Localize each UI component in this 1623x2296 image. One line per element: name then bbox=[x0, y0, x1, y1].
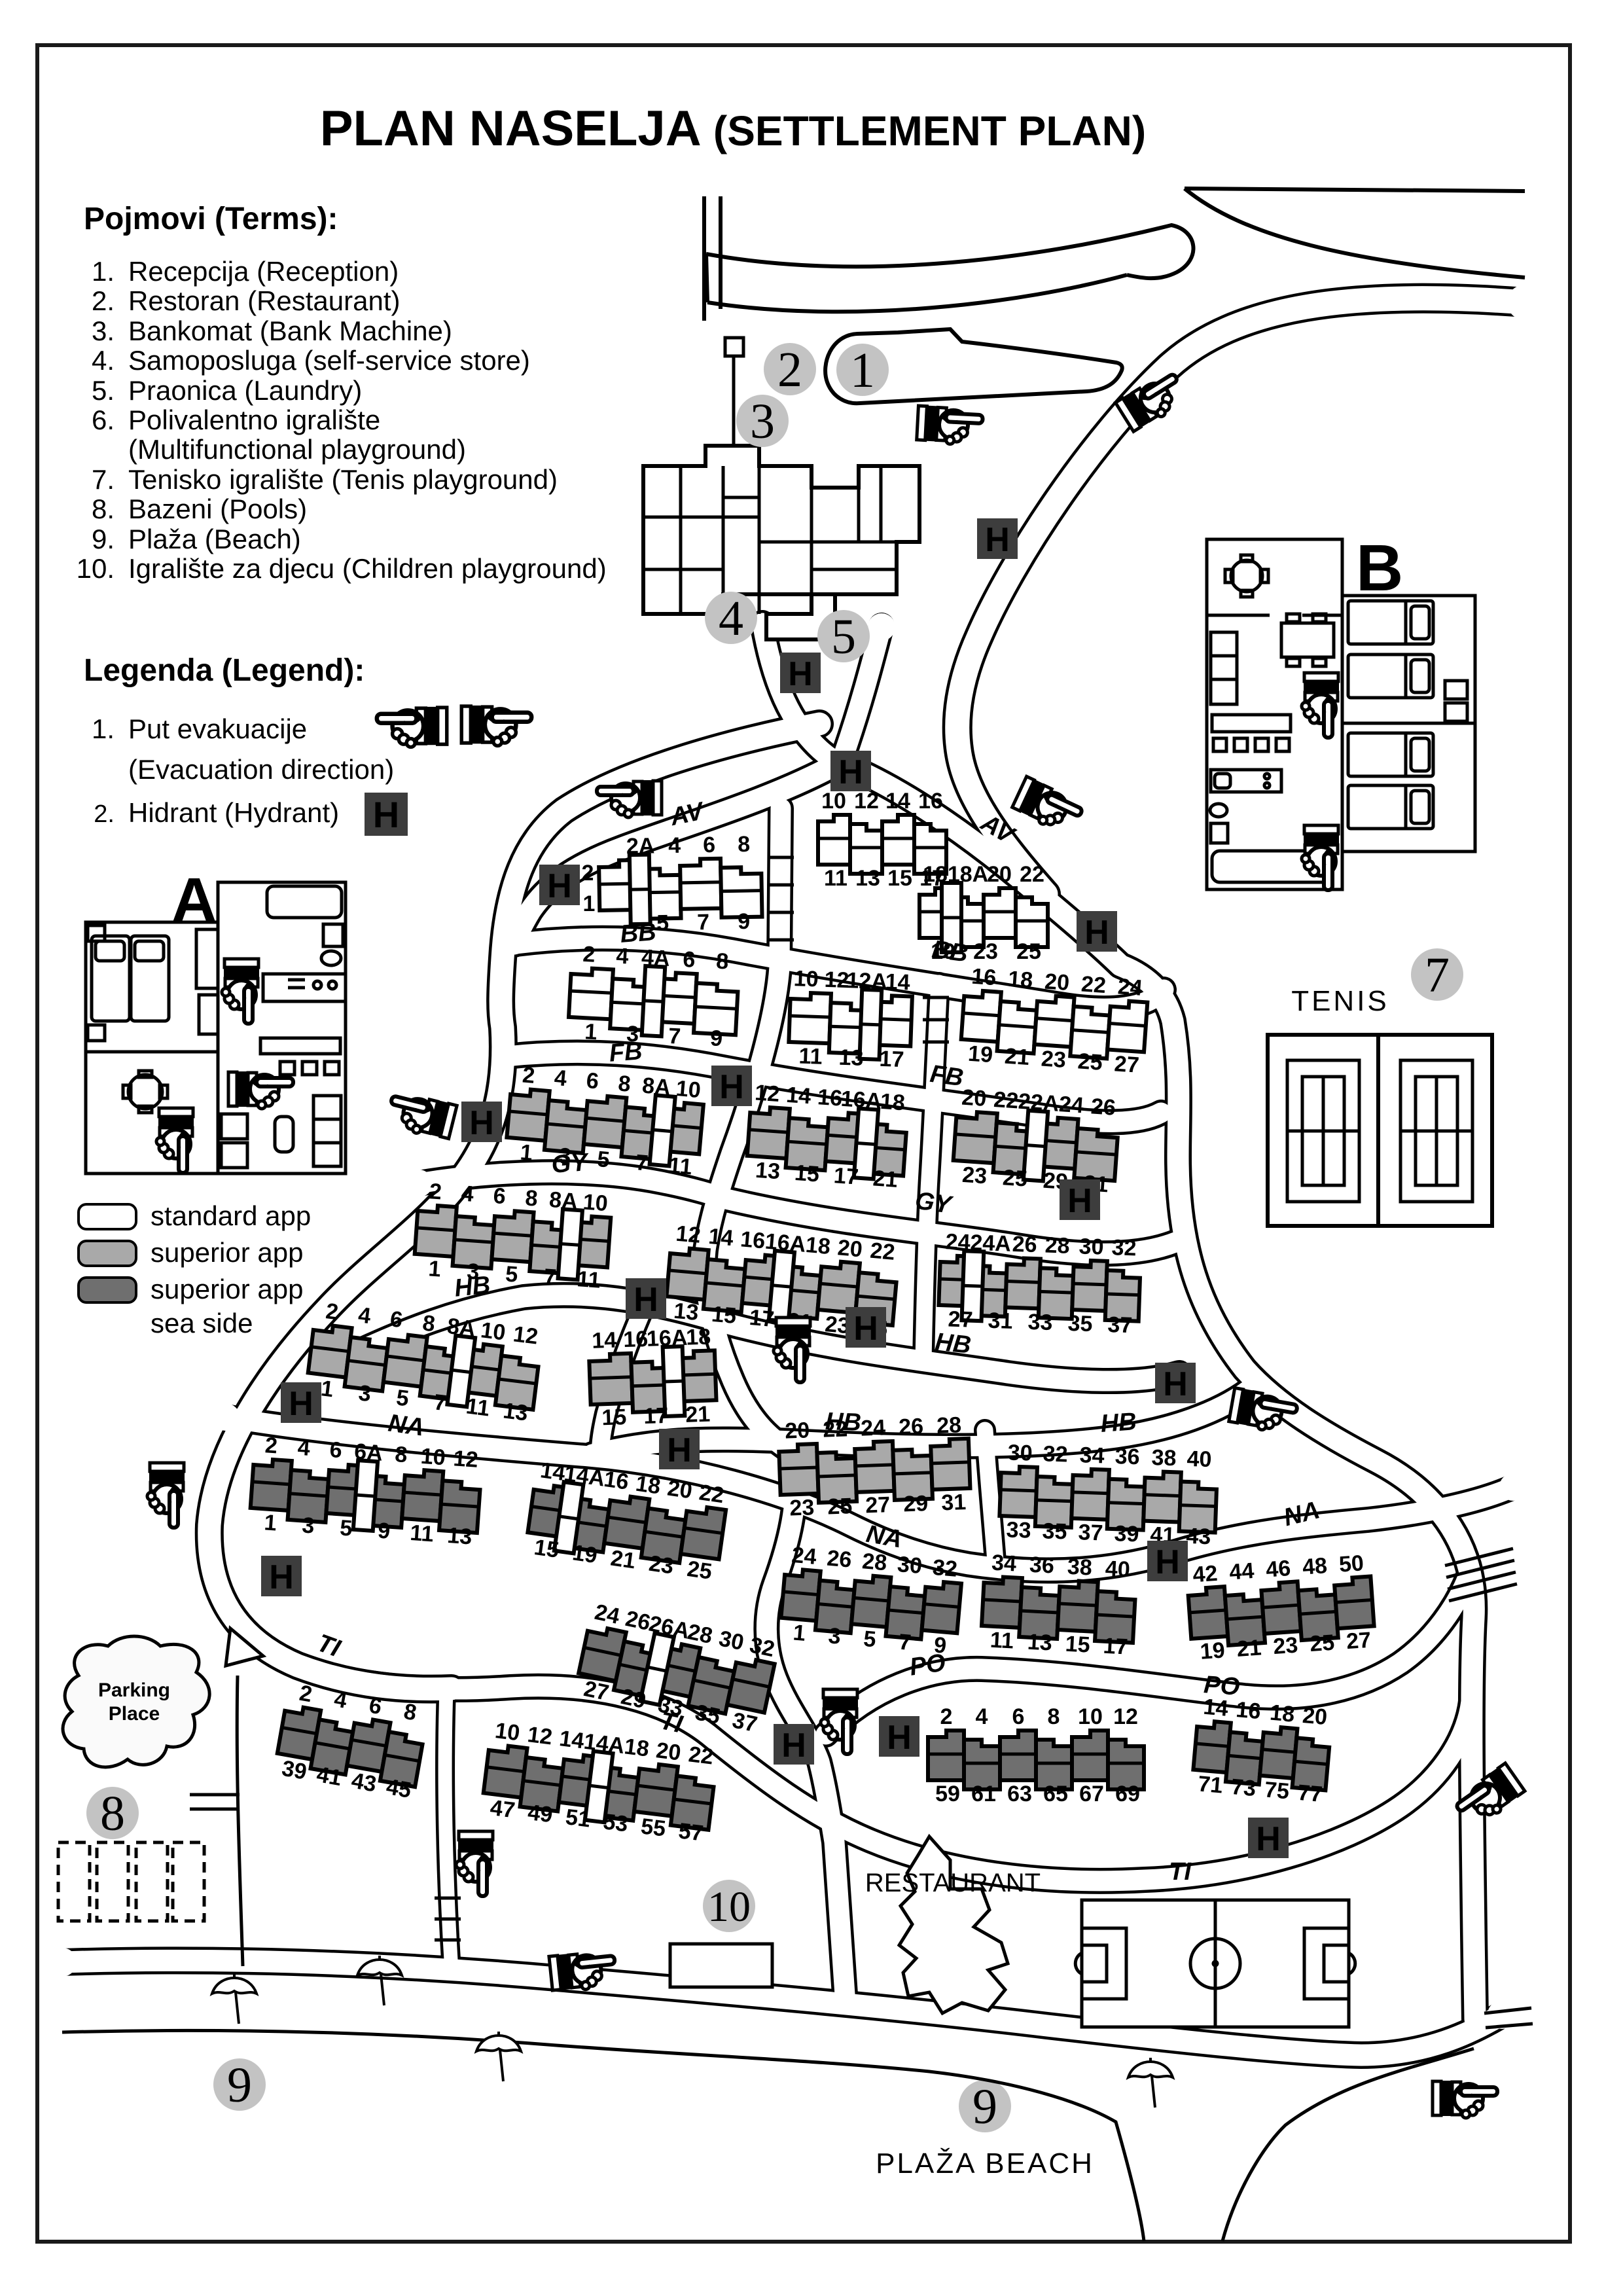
svg-text:Igralište za djecu (Children p: Igralište za djecu (Children playground) bbox=[128, 553, 607, 584]
svg-text:16A: 16A bbox=[764, 1229, 806, 1257]
svg-text:18: 18 bbox=[1007, 967, 1033, 994]
svg-text:12: 12 bbox=[675, 1221, 702, 1248]
svg-text:sea side: sea side bbox=[151, 1308, 253, 1338]
svg-text:32: 32 bbox=[931, 1555, 958, 1582]
svg-text:GY: GY bbox=[914, 1187, 955, 1220]
svg-text:16: 16 bbox=[602, 1467, 630, 1495]
svg-text:Restoran (Restaurant): Restoran (Restaurant) bbox=[128, 285, 401, 316]
svg-text:41: 41 bbox=[315, 1762, 344, 1791]
svg-text:11: 11 bbox=[465, 1393, 491, 1421]
svg-text:22: 22 bbox=[993, 1087, 1019, 1114]
svg-text:10: 10 bbox=[479, 1318, 507, 1345]
svg-text:18: 18 bbox=[880, 1089, 906, 1116]
svg-text:15: 15 bbox=[887, 866, 912, 891]
svg-text:33: 33 bbox=[1027, 1310, 1053, 1335]
svg-text:20: 20 bbox=[836, 1235, 863, 1262]
svg-text:13: 13 bbox=[855, 866, 880, 891]
svg-text:BB: BB bbox=[931, 936, 970, 968]
svg-text:8: 8 bbox=[100, 1786, 125, 1841]
svg-text:27: 27 bbox=[1113, 1051, 1139, 1078]
svg-text:PLAŽA BEACH: PLAŽA BEACH bbox=[876, 2147, 1094, 2179]
svg-text:H: H bbox=[887, 1719, 912, 1757]
svg-text:6: 6 bbox=[703, 833, 716, 857]
svg-text:1: 1 bbox=[519, 1140, 533, 1166]
svg-text:7: 7 bbox=[668, 1024, 681, 1049]
svg-text:40: 40 bbox=[1105, 1556, 1131, 1583]
svg-text:2.: 2. bbox=[94, 800, 115, 828]
svg-text:1: 1 bbox=[792, 1620, 806, 1646]
svg-text:18: 18 bbox=[623, 1734, 651, 1761]
svg-text:4: 4 bbox=[719, 591, 743, 646]
svg-text:15: 15 bbox=[533, 1535, 561, 1563]
svg-text:17: 17 bbox=[833, 1163, 859, 1190]
svg-text:H: H bbox=[838, 753, 863, 791]
svg-text:14: 14 bbox=[558, 1726, 586, 1753]
svg-text:24: 24 bbox=[1058, 1092, 1084, 1119]
svg-text:6.: 6. bbox=[92, 404, 115, 435]
svg-text:25: 25 bbox=[1002, 1165, 1028, 1192]
svg-text:(Evacuation direction): (Evacuation direction) bbox=[128, 754, 394, 785]
svg-text:1.: 1. bbox=[92, 713, 115, 744]
svg-text:16: 16 bbox=[740, 1227, 766, 1253]
svg-text:26: 26 bbox=[1090, 1094, 1116, 1121]
svg-text:5: 5 bbox=[656, 910, 669, 935]
svg-text:22: 22 bbox=[1020, 862, 1044, 887]
svg-text:7.: 7. bbox=[92, 464, 115, 495]
svg-text:11: 11 bbox=[798, 1044, 823, 1069]
svg-text:10.: 10. bbox=[77, 553, 115, 584]
svg-text:25: 25 bbox=[686, 1556, 714, 1585]
svg-text:2: 2 bbox=[777, 342, 802, 397]
svg-text:24: 24 bbox=[592, 1600, 622, 1629]
svg-text:H: H bbox=[1084, 914, 1109, 952]
svg-text:24: 24 bbox=[1117, 974, 1143, 1001]
svg-text:67: 67 bbox=[1079, 1782, 1104, 1806]
svg-text:23: 23 bbox=[1041, 1046, 1067, 1073]
svg-text:15: 15 bbox=[794, 1160, 820, 1187]
svg-text:18A: 18A bbox=[948, 862, 988, 887]
svg-text:11: 11 bbox=[409, 1520, 435, 1547]
svg-text:20: 20 bbox=[961, 1085, 987, 1112]
svg-text:10: 10 bbox=[675, 1076, 702, 1103]
svg-text:16: 16 bbox=[1235, 1697, 1262, 1724]
svg-text:11: 11 bbox=[576, 1266, 601, 1293]
svg-text:20: 20 bbox=[785, 1418, 810, 1443]
svg-text:44: 44 bbox=[1228, 1558, 1255, 1585]
svg-text:55: 55 bbox=[639, 1814, 667, 1841]
svg-text:10: 10 bbox=[707, 1883, 751, 1931]
svg-text:46: 46 bbox=[1265, 1556, 1291, 1583]
svg-text:2.: 2. bbox=[92, 285, 115, 316]
svg-text:21: 21 bbox=[872, 1166, 899, 1193]
svg-text:21: 21 bbox=[609, 1545, 637, 1573]
svg-text:H: H bbox=[1256, 1820, 1281, 1858]
svg-text:50: 50 bbox=[1338, 1551, 1364, 1577]
svg-text:3: 3 bbox=[750, 394, 775, 449]
svg-text:H: H bbox=[1067, 1182, 1092, 1220]
svg-text:16A: 16A bbox=[840, 1086, 883, 1114]
svg-text:21: 21 bbox=[685, 1402, 711, 1427]
svg-text:24A: 24A bbox=[970, 1230, 1012, 1257]
svg-text:9: 9 bbox=[972, 2079, 997, 2134]
svg-text:18: 18 bbox=[923, 862, 948, 887]
svg-text:45: 45 bbox=[384, 1774, 413, 1803]
svg-text:16: 16 bbox=[623, 1327, 649, 1352]
svg-text:1.: 1. bbox=[92, 256, 115, 287]
svg-text:8: 8 bbox=[715, 949, 729, 975]
svg-text:14A: 14A bbox=[582, 1729, 626, 1759]
svg-text:25: 25 bbox=[827, 1494, 853, 1519]
svg-text:2A: 2A bbox=[626, 834, 655, 859]
svg-text:31: 31 bbox=[941, 1490, 967, 1515]
svg-text:9: 9 bbox=[738, 909, 751, 934]
svg-text:16: 16 bbox=[971, 964, 997, 991]
svg-text:30: 30 bbox=[1079, 1234, 1104, 1259]
svg-text:71: 71 bbox=[1197, 1771, 1224, 1798]
svg-text:3: 3 bbox=[827, 1623, 842, 1649]
svg-text:11: 11 bbox=[668, 1153, 693, 1179]
svg-text:20: 20 bbox=[1302, 1703, 1329, 1730]
svg-text:65: 65 bbox=[1043, 1782, 1068, 1806]
svg-text:12: 12 bbox=[1113, 1704, 1138, 1729]
svg-text:12: 12 bbox=[754, 1080, 780, 1107]
svg-text:38: 38 bbox=[1151, 1445, 1177, 1471]
svg-text:7: 7 bbox=[1425, 948, 1450, 1003]
svg-text:49: 49 bbox=[526, 1800, 554, 1827]
svg-text:Hidrant (Hydrant): Hidrant (Hydrant) bbox=[128, 797, 339, 828]
svg-text:superior app: superior app bbox=[151, 1274, 303, 1304]
svg-text:4: 4 bbox=[461, 1181, 475, 1207]
svg-text:HB: HB bbox=[934, 1328, 972, 1359]
svg-text:35: 35 bbox=[693, 1700, 722, 1729]
svg-text:3.: 3. bbox=[92, 315, 115, 346]
svg-text:33: 33 bbox=[1006, 1517, 1031, 1543]
svg-text:1: 1 bbox=[584, 1019, 597, 1045]
svg-text:13: 13 bbox=[446, 1523, 473, 1550]
svg-text:21: 21 bbox=[1236, 1635, 1262, 1662]
svg-text:26: 26 bbox=[826, 1546, 853, 1573]
svg-text:9: 9 bbox=[709, 1026, 723, 1051]
svg-text:2: 2 bbox=[582, 861, 594, 886]
svg-text:7: 7 bbox=[697, 910, 710, 935]
svg-text:22: 22 bbox=[687, 1742, 715, 1769]
svg-text:22: 22 bbox=[698, 1480, 726, 1508]
svg-text:23: 23 bbox=[1272, 1633, 1298, 1660]
svg-text:(Multifunctional playground): (Multifunctional playground) bbox=[128, 434, 466, 465]
svg-text:19: 19 bbox=[571, 1540, 599, 1568]
svg-text:Legenda (Legend):: Legenda (Legend): bbox=[84, 653, 365, 688]
svg-text:RESTAURANT: RESTAURANT bbox=[865, 1869, 1041, 1897]
svg-text:7: 7 bbox=[898, 1630, 912, 1656]
svg-text:57: 57 bbox=[677, 1818, 705, 1846]
svg-text:17: 17 bbox=[643, 1403, 669, 1429]
svg-text:13: 13 bbox=[1027, 1630, 1053, 1656]
svg-text:superior app: superior app bbox=[151, 1237, 303, 1268]
svg-text:75: 75 bbox=[1264, 1777, 1291, 1804]
svg-text:GY: GY bbox=[550, 1149, 590, 1179]
svg-text:59: 59 bbox=[935, 1782, 960, 1806]
svg-text:17: 17 bbox=[879, 1047, 904, 1072]
svg-text:43: 43 bbox=[1186, 1524, 1211, 1549]
svg-text:Parking: Parking bbox=[98, 1679, 170, 1701]
svg-text:6: 6 bbox=[682, 947, 696, 973]
svg-text:H: H bbox=[269, 1558, 294, 1596]
svg-text:14: 14 bbox=[885, 789, 910, 814]
svg-text:39: 39 bbox=[1114, 1521, 1139, 1547]
svg-text:18: 18 bbox=[804, 1232, 831, 1259]
svg-text:37: 37 bbox=[1107, 1312, 1133, 1338]
svg-text:27: 27 bbox=[1346, 1628, 1372, 1655]
svg-text:9: 9 bbox=[377, 1518, 391, 1544]
svg-text:9.: 9. bbox=[92, 524, 115, 554]
svg-text:H: H bbox=[788, 655, 813, 693]
svg-text:Bankomat (Bank Machine): Bankomat (Bank Machine) bbox=[128, 315, 452, 346]
svg-text:28: 28 bbox=[936, 1412, 962, 1438]
svg-text:26: 26 bbox=[1012, 1232, 1037, 1257]
svg-text:19: 19 bbox=[1199, 1638, 1225, 1664]
svg-text:8A: 8A bbox=[446, 1314, 477, 1342]
svg-text:Tenisko igralište (Tenis playg: Tenisko igralište (Tenis playground) bbox=[128, 464, 558, 495]
svg-text:8: 8 bbox=[1048, 1704, 1060, 1729]
svg-text:14: 14 bbox=[885, 969, 910, 995]
svg-text:10: 10 bbox=[582, 1190, 609, 1217]
svg-text:34: 34 bbox=[1079, 1443, 1105, 1468]
svg-text:4: 4 bbox=[976, 1704, 988, 1729]
svg-text:H: H bbox=[719, 1068, 744, 1106]
svg-text:30: 30 bbox=[717, 1626, 746, 1655]
svg-text:12: 12 bbox=[526, 1722, 554, 1749]
svg-text:16: 16 bbox=[817, 1085, 843, 1111]
svg-text:43: 43 bbox=[349, 1768, 378, 1797]
svg-text:17: 17 bbox=[1103, 1634, 1129, 1660]
svg-text:25: 25 bbox=[1309, 1630, 1335, 1657]
svg-text:19: 19 bbox=[967, 1041, 993, 1068]
svg-text:21: 21 bbox=[1004, 1044, 1030, 1071]
svg-text:13: 13 bbox=[673, 1299, 700, 1325]
svg-text:37: 37 bbox=[1078, 1520, 1103, 1545]
svg-text:29: 29 bbox=[903, 1491, 929, 1516]
svg-text:23: 23 bbox=[961, 1162, 988, 1189]
svg-text:39: 39 bbox=[280, 1756, 309, 1785]
svg-text:25: 25 bbox=[1077, 1049, 1103, 1075]
svg-text:Bazeni (Pools): Bazeni (Pools) bbox=[128, 493, 307, 524]
svg-text:24: 24 bbox=[861, 1415, 886, 1441]
svg-text:H: H bbox=[1155, 1543, 1180, 1581]
svg-text:20: 20 bbox=[666, 1476, 694, 1504]
svg-text:Samoposluga (self-service stor: Samoposluga (self-service store) bbox=[128, 345, 530, 376]
svg-text:35: 35 bbox=[1067, 1311, 1093, 1336]
svg-text:10: 10 bbox=[821, 789, 846, 814]
svg-text:15: 15 bbox=[711, 1302, 738, 1329]
svg-text:27: 27 bbox=[948, 1306, 973, 1332]
svg-text:31: 31 bbox=[988, 1308, 1013, 1334]
svg-text:8.: 8. bbox=[92, 493, 115, 524]
svg-text:18: 18 bbox=[1269, 1700, 1296, 1727]
svg-text:27: 27 bbox=[865, 1492, 891, 1518]
svg-text:FB: FB bbox=[608, 1037, 643, 1067]
svg-text:5: 5 bbox=[596, 1147, 611, 1173]
svg-text:Recepcija (Reception): Recepcija (Reception) bbox=[128, 256, 399, 287]
svg-text:27: 27 bbox=[582, 1676, 611, 1706]
svg-text:PLAN NASELJA (SETTLEMENT PLAN): PLAN NASELJA (SETTLEMENT PLAN) bbox=[320, 101, 1146, 156]
svg-text:23: 23 bbox=[973, 939, 998, 964]
svg-text:10: 10 bbox=[1078, 1704, 1103, 1729]
svg-text:15: 15 bbox=[1065, 1632, 1091, 1658]
svg-text:40: 40 bbox=[1186, 1446, 1212, 1472]
svg-text:2: 2 bbox=[429, 1179, 443, 1204]
svg-text:32: 32 bbox=[747, 1632, 777, 1662]
svg-text:PO: PO bbox=[908, 1649, 947, 1681]
svg-text:12: 12 bbox=[854, 789, 879, 814]
svg-text:NA: NA bbox=[387, 1410, 426, 1442]
svg-text:Plaža (Beach): Plaža (Beach) bbox=[128, 524, 301, 554]
svg-text:42: 42 bbox=[1192, 1561, 1218, 1588]
svg-text:32: 32 bbox=[1043, 1441, 1068, 1467]
svg-text:A: A bbox=[171, 865, 217, 935]
svg-text:36: 36 bbox=[1029, 1552, 1055, 1579]
svg-text:12: 12 bbox=[512, 1321, 539, 1349]
svg-text:HB: HB bbox=[1099, 1408, 1137, 1438]
svg-text:22A: 22A bbox=[1018, 1089, 1060, 1117]
svg-text:TENIS: TENIS bbox=[1291, 985, 1389, 1017]
svg-text:1: 1 bbox=[583, 891, 596, 916]
svg-text:4: 4 bbox=[668, 833, 681, 858]
svg-text:17: 17 bbox=[748, 1305, 775, 1332]
svg-text:35: 35 bbox=[1042, 1518, 1067, 1544]
svg-text:H: H bbox=[373, 794, 399, 835]
svg-text:H: H bbox=[1163, 1365, 1188, 1403]
svg-text:24: 24 bbox=[945, 1229, 971, 1255]
svg-text:20: 20 bbox=[654, 1738, 682, 1765]
svg-text:23: 23 bbox=[789, 1495, 815, 1520]
svg-text:4.: 4. bbox=[92, 345, 115, 376]
svg-text:4A: 4A bbox=[641, 945, 670, 971]
svg-text:61: 61 bbox=[971, 1782, 996, 1806]
svg-text:H: H bbox=[469, 1104, 494, 1142]
svg-text:standard app: standard app bbox=[151, 1200, 311, 1231]
svg-text:16A: 16A bbox=[646, 1325, 688, 1352]
svg-text:1: 1 bbox=[427, 1256, 442, 1282]
svg-text:H: H bbox=[985, 521, 1010, 559]
svg-text:H: H bbox=[547, 867, 572, 905]
svg-text:4: 4 bbox=[297, 1435, 312, 1461]
svg-text:14: 14 bbox=[592, 1328, 617, 1354]
svg-text:B: B bbox=[1356, 531, 1403, 605]
svg-text:23: 23 bbox=[647, 1551, 675, 1579]
svg-text:29: 29 bbox=[618, 1684, 648, 1713]
svg-text:H: H bbox=[853, 1310, 878, 1348]
svg-text:24: 24 bbox=[791, 1543, 817, 1570]
svg-text:36: 36 bbox=[1115, 1444, 1140, 1469]
svg-text:18: 18 bbox=[686, 1325, 711, 1350]
svg-text:2: 2 bbox=[582, 942, 596, 967]
svg-text:12A: 12A bbox=[846, 968, 888, 994]
svg-text:1: 1 bbox=[263, 1510, 277, 1535]
svg-text:47: 47 bbox=[489, 1795, 516, 1823]
svg-text:14: 14 bbox=[707, 1224, 734, 1251]
svg-text:22: 22 bbox=[869, 1238, 896, 1265]
svg-text:13: 13 bbox=[755, 1158, 781, 1185]
svg-text:28: 28 bbox=[685, 1619, 715, 1649]
svg-text:28: 28 bbox=[861, 1549, 888, 1575]
svg-text:FB: FB bbox=[929, 1060, 965, 1092]
svg-text:30: 30 bbox=[1007, 1440, 1033, 1465]
svg-text:48: 48 bbox=[1302, 1553, 1328, 1580]
svg-text:Praonica (Laundry): Praonica (Laundry) bbox=[128, 375, 362, 406]
svg-text:4: 4 bbox=[553, 1066, 567, 1092]
svg-text:8: 8 bbox=[394, 1442, 408, 1467]
svg-text:6: 6 bbox=[585, 1068, 599, 1094]
svg-text:H: H bbox=[667, 1431, 692, 1469]
svg-text:28: 28 bbox=[1044, 1233, 1070, 1259]
svg-text:2: 2 bbox=[522, 1063, 536, 1089]
svg-text:8: 8 bbox=[617, 1071, 632, 1097]
svg-text:2: 2 bbox=[940, 1704, 953, 1729]
svg-text:7: 7 bbox=[635, 1150, 649, 1176]
svg-text:8A: 8A bbox=[548, 1187, 579, 1214]
svg-text:8A: 8A bbox=[641, 1073, 672, 1101]
svg-text:6: 6 bbox=[329, 1437, 343, 1463]
svg-text:63: 63 bbox=[1007, 1782, 1032, 1806]
svg-text:H: H bbox=[781, 1727, 806, 1765]
svg-text:5: 5 bbox=[863, 1626, 877, 1653]
svg-text:30: 30 bbox=[897, 1552, 923, 1579]
svg-text:1: 1 bbox=[850, 343, 875, 398]
svg-text:BB: BB bbox=[619, 918, 657, 948]
svg-text:10: 10 bbox=[493, 1718, 521, 1746]
svg-text:5.: 5. bbox=[92, 375, 115, 406]
svg-text:5: 5 bbox=[339, 1515, 353, 1541]
svg-text:Place: Place bbox=[109, 1703, 160, 1725]
svg-text:2: 2 bbox=[264, 1433, 279, 1458]
svg-text:5: 5 bbox=[831, 609, 856, 664]
svg-text:32: 32 bbox=[1111, 1235, 1137, 1261]
svg-text:Polivalentno igralište: Polivalentno igralište bbox=[128, 404, 380, 435]
svg-text:PO: PO bbox=[1203, 1671, 1241, 1701]
svg-text:6: 6 bbox=[1012, 1704, 1025, 1729]
svg-text:7: 7 bbox=[543, 1265, 558, 1290]
svg-text:11: 11 bbox=[990, 1628, 1014, 1654]
svg-text:H: H bbox=[633, 1281, 658, 1319]
svg-text:Put evakuacije: Put evakuacije bbox=[128, 713, 307, 744]
svg-text:69: 69 bbox=[1115, 1782, 1140, 1806]
svg-text:37: 37 bbox=[730, 1708, 760, 1737]
svg-text:9: 9 bbox=[227, 2058, 252, 2113]
svg-text:10: 10 bbox=[793, 966, 819, 992]
svg-text:20: 20 bbox=[1044, 969, 1070, 996]
svg-text:13: 13 bbox=[502, 1398, 529, 1426]
svg-text:H: H bbox=[289, 1385, 313, 1423]
svg-text:6: 6 bbox=[492, 1183, 507, 1209]
svg-text:77: 77 bbox=[1296, 1780, 1323, 1807]
svg-text:6A: 6A bbox=[353, 1439, 383, 1466]
svg-text:26: 26 bbox=[899, 1414, 924, 1439]
svg-text:Pojmovi (Terms):: Pojmovi (Terms): bbox=[84, 202, 338, 236]
svg-text:15: 15 bbox=[601, 1405, 627, 1430]
svg-text:22: 22 bbox=[1080, 971, 1107, 998]
svg-text:11: 11 bbox=[824, 866, 847, 891]
svg-text:8: 8 bbox=[738, 832, 751, 857]
svg-text:16: 16 bbox=[918, 789, 943, 814]
svg-text:18: 18 bbox=[634, 1471, 662, 1499]
svg-text:3: 3 bbox=[301, 1513, 315, 1538]
svg-text:8: 8 bbox=[524, 1185, 539, 1211]
svg-text:53: 53 bbox=[602, 1809, 630, 1837]
svg-text:HB: HB bbox=[453, 1271, 491, 1302]
svg-text:38: 38 bbox=[1067, 1554, 1093, 1581]
svg-text:TI: TI bbox=[1169, 1858, 1192, 1886]
svg-text:34: 34 bbox=[991, 1551, 1017, 1577]
